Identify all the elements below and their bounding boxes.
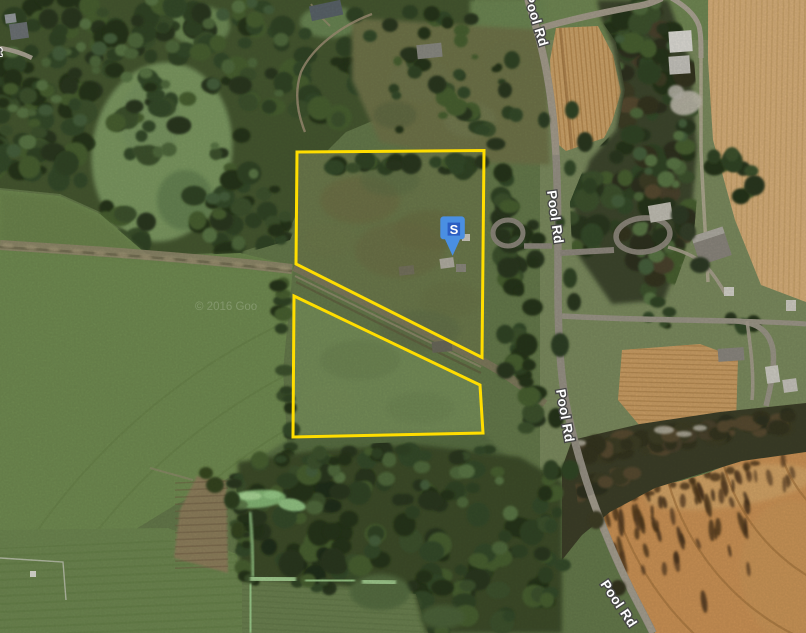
svg-text:© 2016 Goo: © 2016 Goo [195,301,257,313]
svg-text:S: S [450,222,459,237]
svg-text:t: t [0,45,2,59]
